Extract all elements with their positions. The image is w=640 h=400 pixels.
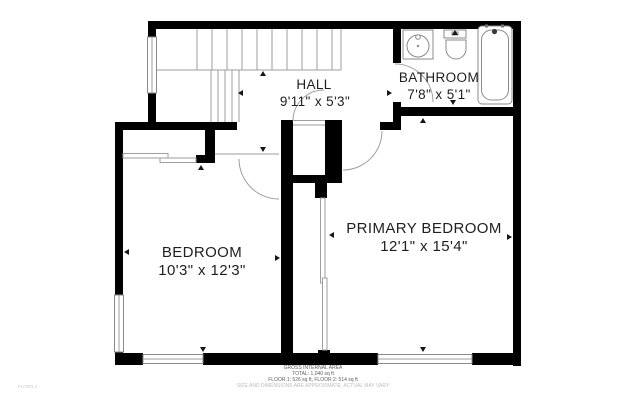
bathtub-inner: [482, 30, 509, 100]
wall-partition-foot: [318, 350, 330, 354]
primary-closet-slider-panel: [323, 278, 328, 350]
wall-left-upper: [115, 122, 123, 295]
wall-bottom-right: [472, 353, 521, 365]
wall-top: [148, 21, 521, 29]
wall-bedroom-top: [115, 122, 237, 130]
wall-bathroom-left: [393, 21, 401, 63]
wall-stair-left-upper: [148, 21, 156, 37]
tub-faucet-icon: [492, 29, 497, 34]
primary-bedroom-label: PRIMARY BEDROOM: [346, 220, 501, 237]
toilet-bowl-icon: [446, 40, 466, 59]
windows: [115, 37, 473, 364]
bedroom-closet-slider-panel: [160, 158, 196, 163]
tub-handle-icon: [501, 25, 504, 28]
wall-bathroom-bottom: [393, 107, 521, 116]
primary-closet-slider-panel: [321, 198, 326, 283]
wall-bottom-mid: [203, 353, 378, 365]
bedroom-closet-slider-panel: [123, 154, 168, 159]
hall-label: HALL: [296, 77, 331, 92]
bedroom-label: BEDROOM: [162, 244, 242, 261]
wall-left-bottom: [115, 352, 123, 365]
tub-handle-icon: [485, 25, 488, 28]
wall-right: [513, 21, 521, 366]
footer: GROSS INTERNAL AREA TOTAL: 1,040 sq ft F…: [18, 365, 390, 389]
wall-closet-end: [205, 122, 215, 163]
wall-closet-bottom: [293, 175, 342, 183]
sink-faucet-icon: [416, 35, 421, 40]
hall-dimensions: 9'11" x 5'3": [280, 94, 350, 109]
wall-primary-left: [325, 120, 342, 183]
floor-plan-page: HALL 9'11" x 5'3" BATHROOM 7'8" x 5'1" B…: [0, 0, 640, 400]
bathroom-dimensions: 7'8" x 5'1": [407, 87, 470, 102]
wall-hall-primary-jog: [380, 122, 401, 130]
primary-door-arc: [343, 131, 382, 170]
floor-number-label: FLOOR 2: [18, 384, 38, 389]
sink-drain-icon: [417, 45, 419, 47]
wall-stub: [315, 183, 327, 198]
bedroom-door-arc: [239, 159, 279, 199]
floor-plan: HALL 9'11" x 5'3" BATHROOM 7'8" x 5'1" B…: [0, 0, 640, 400]
disclaimer: SIZE AND DIMENSIONS ARE APPROXIMATE, ACT…: [237, 383, 390, 389]
bathroom-label: BATHROOM: [399, 70, 479, 85]
primary-bedroom-dimensions: 12'1" x 15'4": [380, 238, 467, 255]
bedroom-dimensions: 10'3" x 12'3": [158, 262, 245, 279]
wall-closet-foot: [196, 155, 205, 163]
wall-between-bedrooms: [281, 120, 293, 353]
